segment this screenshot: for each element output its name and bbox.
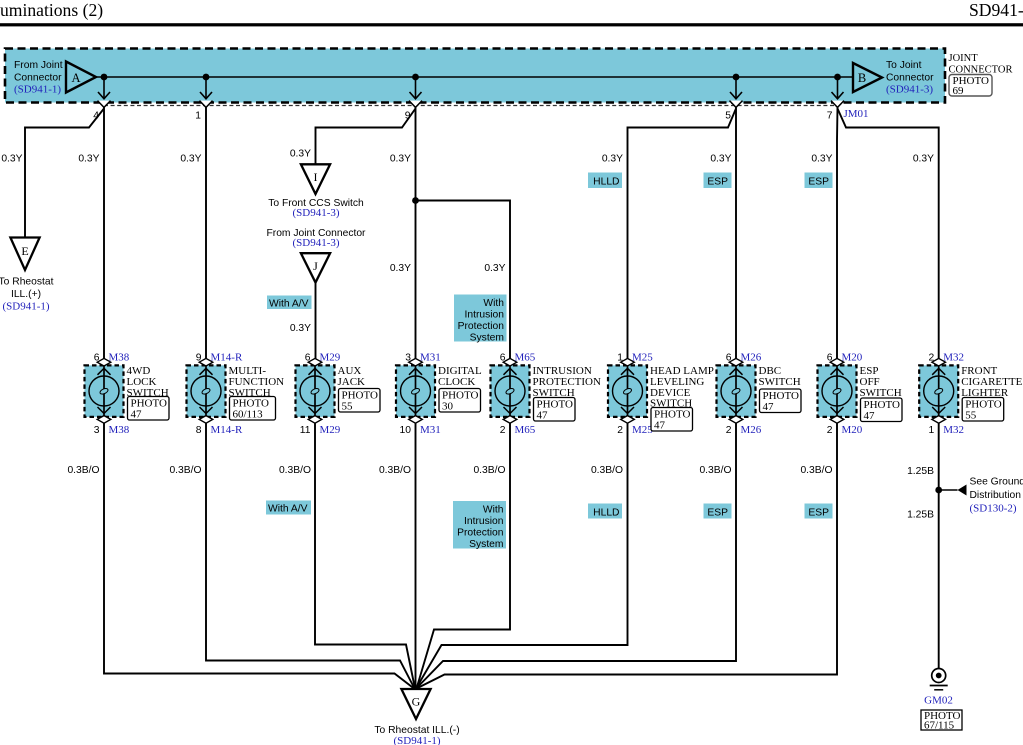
svg-text:I: I — [314, 170, 318, 184]
svg-text:1.25B: 1.25B — [907, 466, 934, 477]
svg-text:M29: M29 — [320, 352, 341, 364]
svg-text:3: 3 — [405, 353, 411, 364]
svg-text:SWITCH: SWITCH — [860, 387, 902, 399]
svg-text:Distribution: Distribution — [970, 490, 1022, 501]
svg-text:ESP: ESP — [707, 177, 728, 188]
svg-text:0.3Y: 0.3Y — [1, 154, 22, 165]
svg-text:ILL.(+): ILL.(+) — [11, 289, 41, 300]
svg-text:0.3B/O: 0.3B/O — [800, 465, 832, 476]
svg-text:HLLD: HLLD — [593, 508, 619, 519]
svg-text:M25: M25 — [632, 424, 653, 436]
svg-text:(SD941-1): (SD941-1) — [14, 84, 61, 96]
svg-text:uminations (2): uminations (2) — [0, 0, 103, 20]
svg-text:(SD941-1): (SD941-1) — [393, 735, 440, 745]
svg-text:2: 2 — [500, 425, 506, 436]
svg-text:60/113: 60/113 — [233, 409, 264, 421]
svg-text:Connector: Connector — [886, 73, 934, 84]
svg-text:0.3Y: 0.3Y — [390, 154, 411, 165]
svg-text:M29: M29 — [320, 424, 341, 436]
svg-text:1: 1 — [617, 353, 623, 364]
svg-text:M65: M65 — [515, 424, 536, 436]
svg-text:47: 47 — [763, 401, 775, 413]
svg-text:0.3Y: 0.3Y — [710, 154, 731, 165]
svg-text:47: 47 — [654, 420, 666, 432]
svg-text:2: 2 — [726, 425, 732, 436]
svg-text:Protection: Protection — [457, 528, 504, 539]
svg-text:0.3B/O: 0.3B/O — [169, 465, 201, 476]
svg-text:0.3B/O: 0.3B/O — [279, 465, 311, 476]
svg-text:1: 1 — [928, 425, 934, 436]
svg-text:6: 6 — [827, 353, 833, 364]
svg-text:11: 11 — [300, 425, 311, 436]
svg-text:With: With — [483, 505, 504, 516]
svg-text:M65: M65 — [515, 352, 536, 364]
svg-text:M20: M20 — [842, 424, 863, 436]
svg-text:0.3Y: 0.3Y — [290, 149, 311, 160]
svg-text:M32: M32 — [943, 424, 964, 436]
svg-text:2: 2 — [928, 353, 934, 364]
svg-text:M20: M20 — [842, 352, 863, 364]
svg-text:55: 55 — [342, 401, 354, 413]
svg-text:7: 7 — [827, 111, 833, 122]
svg-text:System: System — [470, 333, 504, 344]
svg-text:0.3Y: 0.3Y — [78, 154, 99, 165]
svg-text:0.3B/O: 0.3B/O — [699, 465, 731, 476]
svg-text:M38: M38 — [109, 424, 130, 436]
svg-text:JACK: JACK — [338, 376, 366, 388]
svg-text:69: 69 — [953, 85, 965, 97]
svg-text:Intrusion: Intrusion — [465, 310, 505, 321]
svg-text:3: 3 — [94, 425, 100, 436]
svg-text:J: J — [313, 259, 318, 273]
svg-text:Connector: Connector — [14, 73, 62, 84]
svg-text:47: 47 — [537, 410, 549, 422]
svg-text:(SD941-1): (SD941-1) — [2, 301, 49, 313]
svg-text:10: 10 — [400, 425, 412, 436]
svg-text:(SD941-3): (SD941-3) — [292, 237, 339, 249]
svg-text:0.3B/O: 0.3B/O — [379, 465, 411, 476]
svg-text:M26: M26 — [741, 424, 762, 436]
svg-text:8: 8 — [196, 425, 202, 436]
svg-text:M14-R: M14-R — [211, 424, 243, 436]
svg-text:30: 30 — [442, 401, 454, 413]
svg-text:See Ground: See Ground — [970, 477, 1023, 488]
svg-text:0.3Y: 0.3Y — [484, 263, 505, 274]
svg-text:To Rheostat: To Rheostat — [0, 277, 54, 288]
svg-text:M25: M25 — [632, 352, 653, 364]
svg-text:(SD941-3): (SD941-3) — [886, 84, 933, 96]
svg-text:M26: M26 — [741, 352, 762, 364]
svg-text:B: B — [858, 71, 866, 85]
svg-text:0.3B/O: 0.3B/O — [473, 465, 505, 476]
svg-text:47: 47 — [864, 410, 876, 422]
svg-text:With A/V: With A/V — [269, 299, 309, 310]
svg-text:1.25B: 1.25B — [907, 510, 934, 521]
svg-text:SWITCH: SWITCH — [759, 376, 801, 388]
svg-text:JOINT: JOINT — [949, 53, 979, 64]
svg-text:2: 2 — [617, 425, 623, 436]
svg-text:6: 6 — [305, 353, 311, 364]
svg-text:CLOCK: CLOCK — [438, 376, 475, 388]
svg-text:6: 6 — [726, 353, 732, 364]
svg-text:JM01: JM01 — [844, 108, 869, 120]
svg-text:67/115: 67/115 — [924, 720, 955, 732]
svg-text:0.3B/O: 0.3B/O — [67, 465, 99, 476]
svg-text:A: A — [71, 71, 80, 85]
svg-text:To Joint: To Joint — [886, 60, 922, 71]
svg-text:6: 6 — [500, 353, 506, 364]
svg-text:0.3Y: 0.3Y — [811, 154, 832, 165]
svg-text:G: G — [412, 695, 421, 709]
svg-text:E: E — [21, 244, 28, 258]
svg-text:0.3B/O: 0.3B/O — [591, 465, 623, 476]
svg-text:SD941-3: SD941-3 — [969, 0, 1023, 20]
svg-text:GM02: GM02 — [924, 695, 953, 707]
svg-text:HLLD: HLLD — [593, 177, 619, 188]
svg-text:47: 47 — [131, 409, 143, 421]
svg-text:M38: M38 — [109, 352, 130, 364]
svg-text:(SD130-2): (SD130-2) — [970, 503, 1017, 515]
svg-text:Protection: Protection — [458, 321, 505, 332]
svg-text:0.3Y: 0.3Y — [180, 154, 201, 165]
svg-text:ESP: ESP — [808, 508, 829, 519]
svg-text:From Joint: From Joint — [14, 60, 63, 71]
svg-text:M14-R: M14-R — [211, 352, 243, 364]
svg-text:System: System — [469, 539, 503, 550]
svg-text:M32: M32 — [943, 352, 964, 364]
svg-text:0.3Y: 0.3Y — [390, 263, 411, 274]
svg-text:9: 9 — [196, 353, 202, 364]
svg-text:With A/V: With A/V — [268, 504, 308, 515]
svg-text:6: 6 — [94, 353, 100, 364]
svg-text:ESP: ESP — [808, 177, 829, 188]
svg-text:0.3Y: 0.3Y — [913, 154, 934, 165]
svg-text:55: 55 — [965, 410, 977, 422]
svg-text:0.3Y: 0.3Y — [602, 154, 623, 165]
svg-text:1: 1 — [195, 111, 201, 122]
svg-text:Intrusion: Intrusion — [464, 516, 504, 527]
svg-text:ESP: ESP — [707, 508, 728, 519]
svg-text:0.3Y: 0.3Y — [290, 323, 311, 334]
svg-text:(SD941-3): (SD941-3) — [292, 207, 339, 219]
svg-text:M31: M31 — [420, 424, 441, 436]
svg-text:2: 2 — [827, 425, 833, 436]
svg-text:With: With — [483, 298, 504, 309]
svg-text:M31: M31 — [420, 352, 441, 364]
